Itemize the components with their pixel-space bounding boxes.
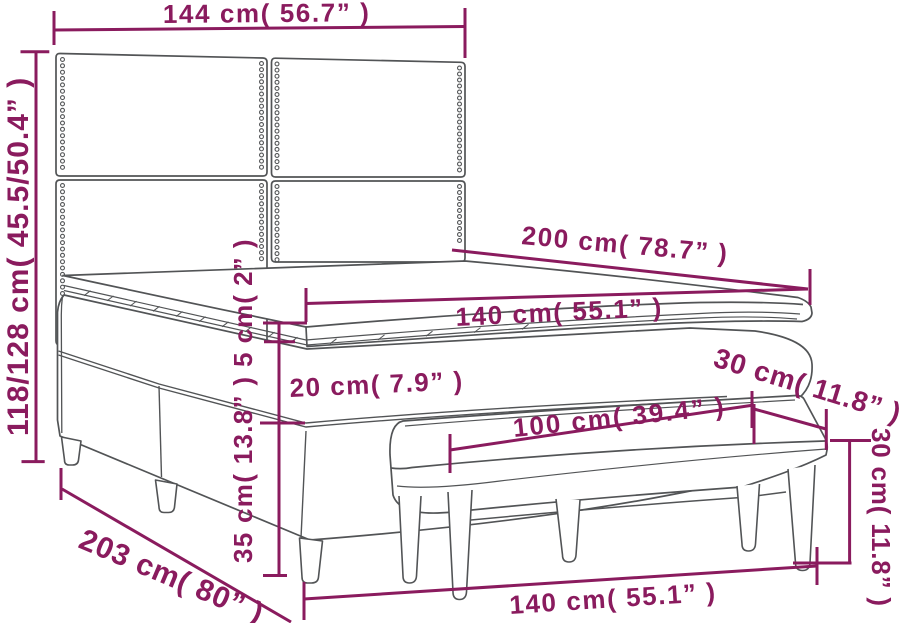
svg-text:144 cm( 56.7” ): 144 cm( 56.7” ) xyxy=(163,0,371,29)
svg-text:30 cm( 11.8” ): 30 cm( 11.8” ) xyxy=(866,428,896,607)
svg-text:5 cm( 2” ): 5 cm( 2” ) xyxy=(228,239,258,368)
svg-text:35 cm( 13.8” ): 35 cm( 13.8” ) xyxy=(228,376,258,563)
svg-text:118/128 cm( 45.5/50.4” ): 118/128 cm( 45.5/50.4” ) xyxy=(2,77,35,436)
